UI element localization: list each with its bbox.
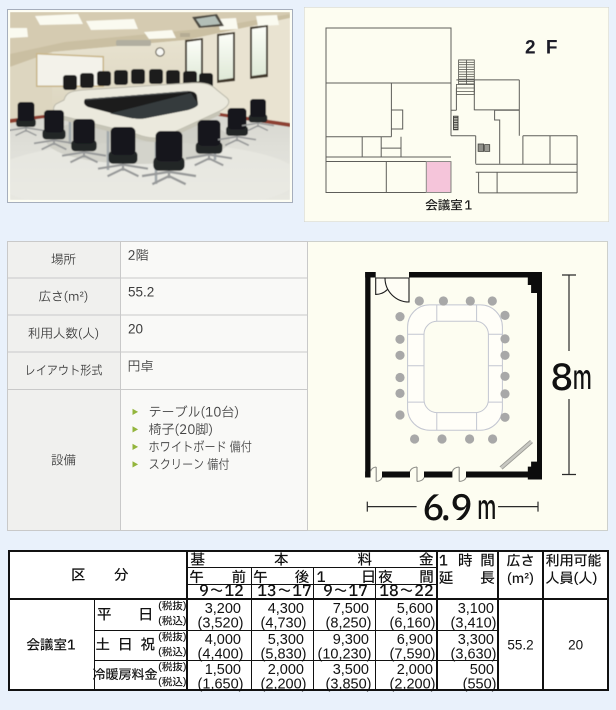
svg-text:(4,400): (4,400) — [198, 647, 244, 663]
svg-text:(3,520): (3,520) — [198, 616, 244, 632]
svg-text:(2,200): (2,200) — [390, 677, 436, 693]
svg-text:20: 20 — [568, 638, 583, 653]
svg-text:(3,630): (3,630) — [451, 647, 497, 663]
svg-text:(550): (550) — [463, 677, 497, 693]
svg-text:(10,230): (10,230) — [317, 647, 371, 663]
svg-text:55.2: 55.2 — [128, 285, 154, 300]
svg-text:(8,250): (8,250) — [326, 616, 372, 632]
svg-text:55.2: 55.2 — [507, 638, 533, 653]
svg-text:(4,730): (4,730) — [261, 616, 307, 632]
svg-text:(2,200): (2,200) — [261, 677, 307, 693]
svg-text:(3,850): (3,850) — [326, 677, 372, 693]
svg-text:(7,590): (7,590) — [390, 647, 436, 663]
svg-text:20: 20 — [128, 322, 143, 337]
svg-text:(6,160): (6,160) — [390, 616, 436, 632]
svg-text:(1,650): (1,650) — [198, 677, 244, 693]
svg-text:2 F: 2 F — [525, 38, 560, 59]
svg-text:(3,410): (3,410) — [451, 616, 497, 632]
svg-text:(5,830): (5,830) — [261, 647, 307, 663]
